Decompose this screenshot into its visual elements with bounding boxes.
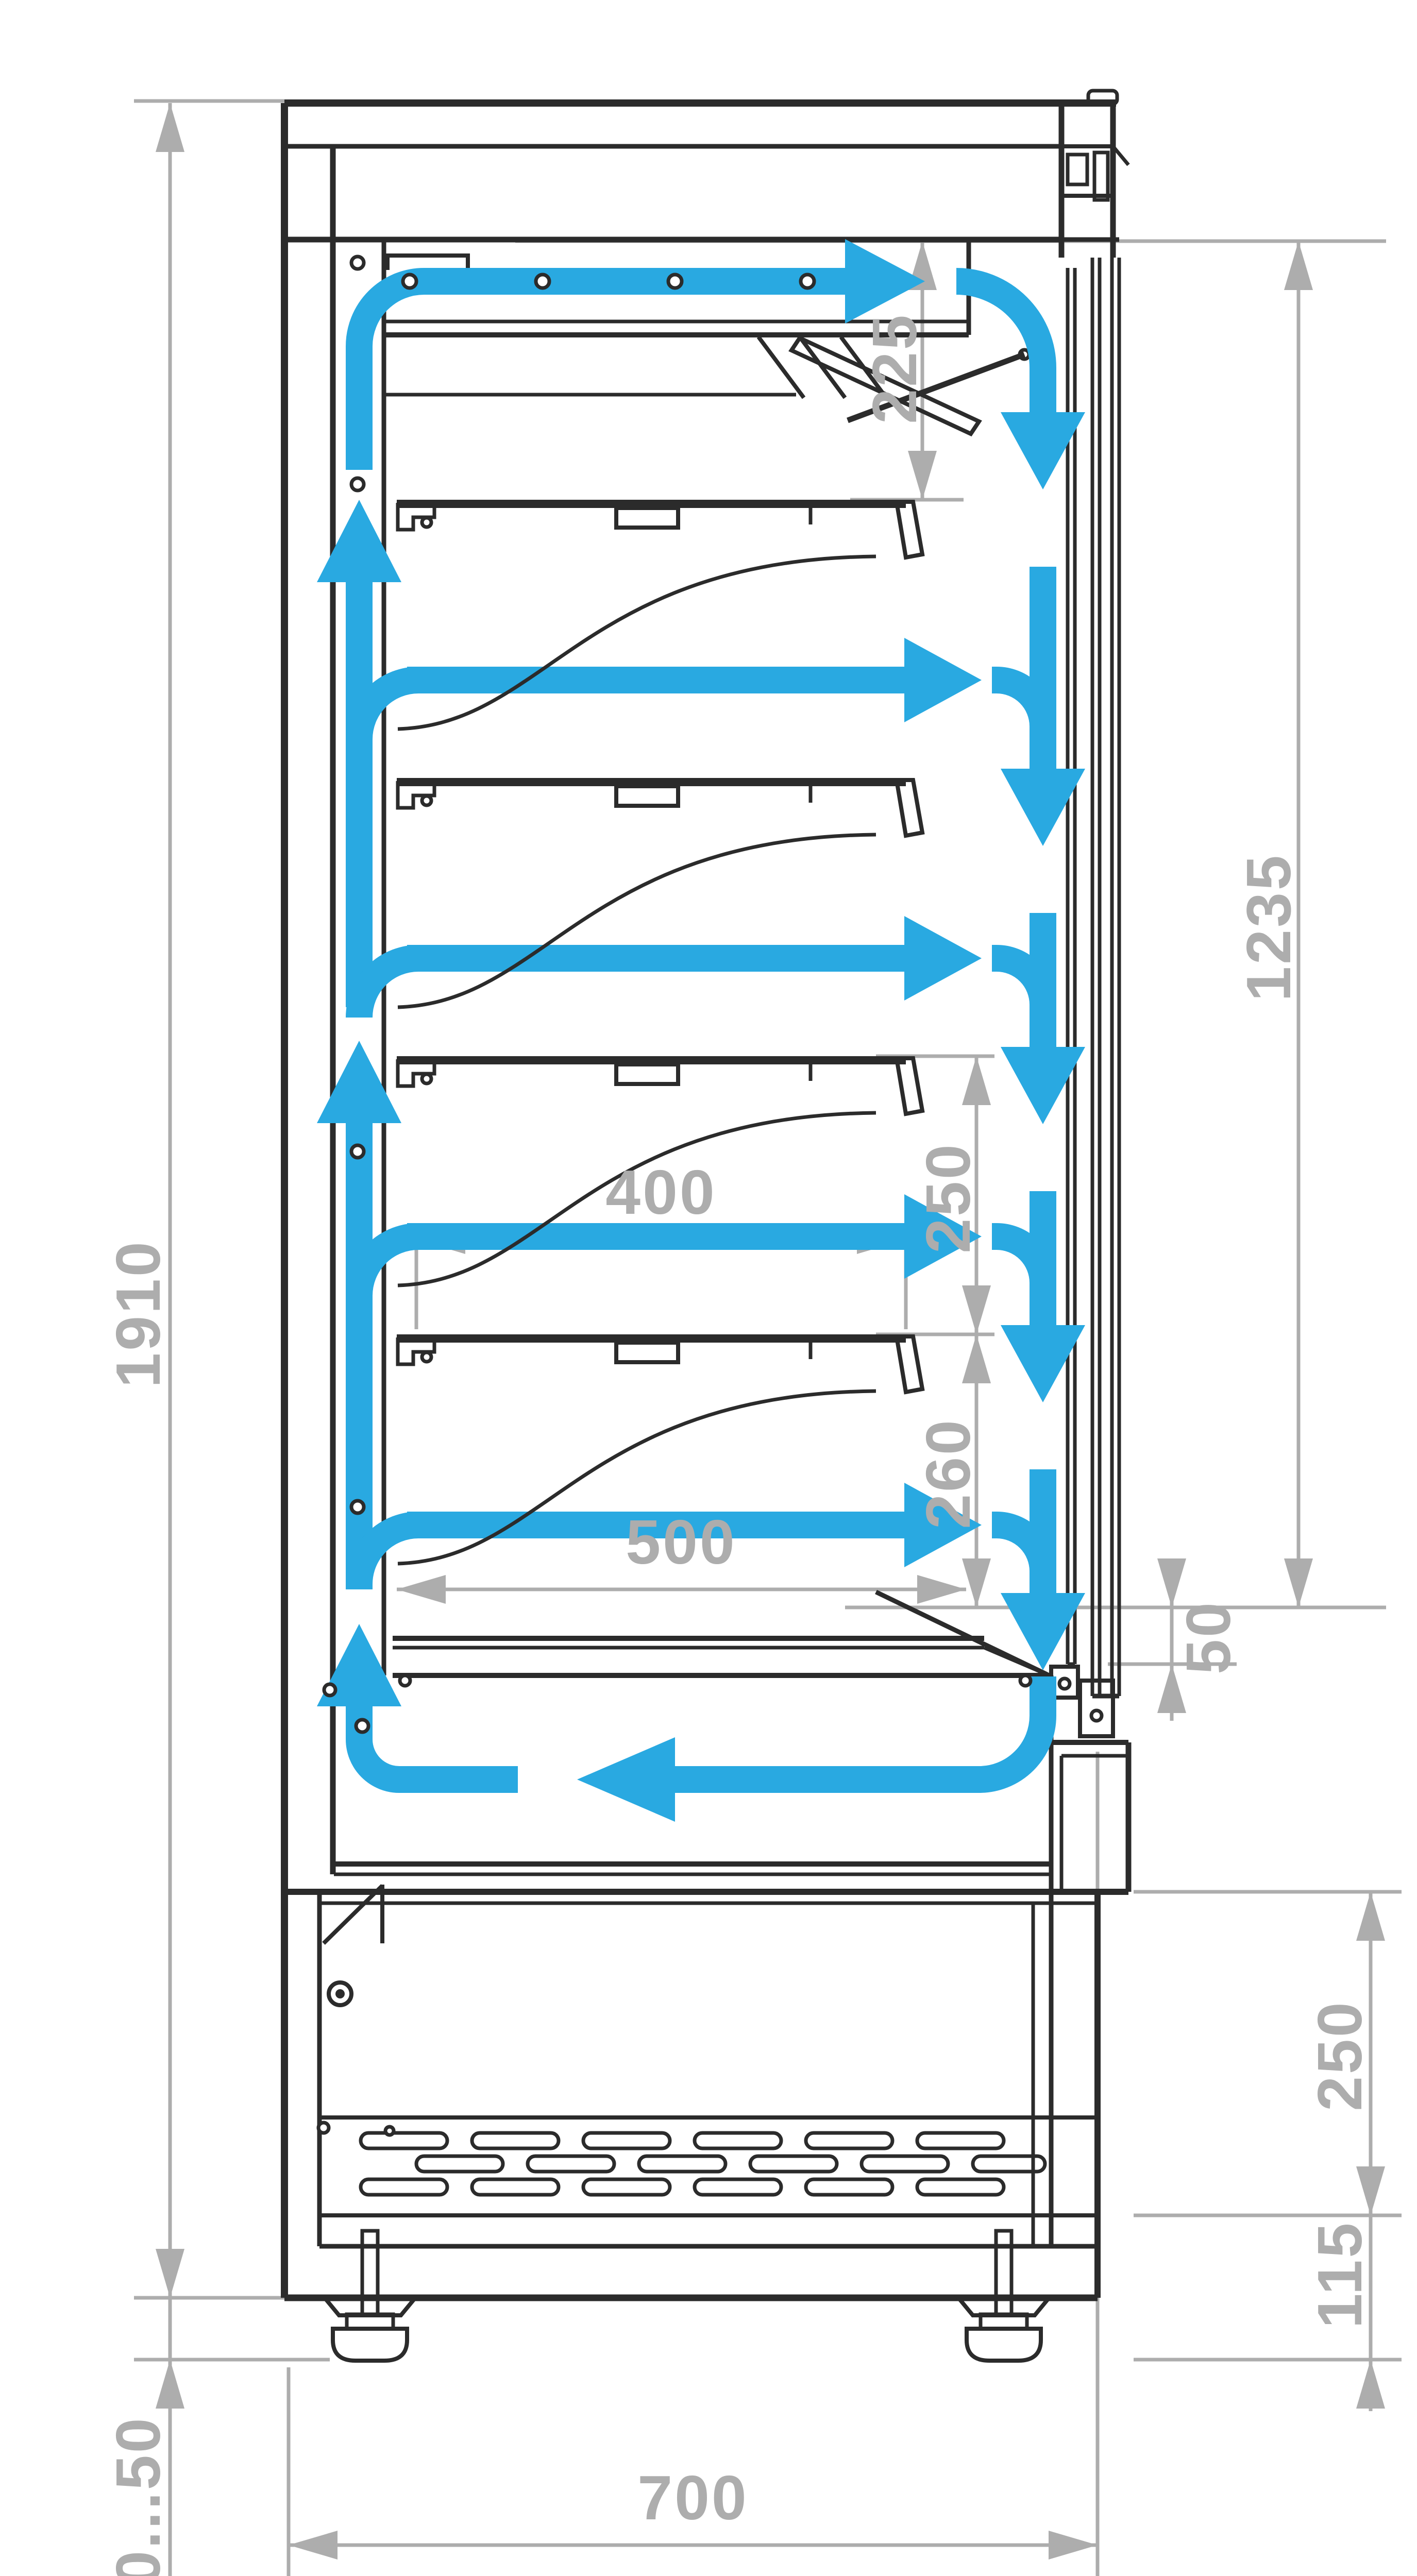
label-bottom-shelf-to-deck: 260 (913, 1418, 983, 1529)
arrow-left (397, 1575, 446, 1604)
machine-base (284, 1885, 1128, 2298)
rivet (1020, 1675, 1031, 1686)
shelf-4 (397, 1336, 922, 1392)
label-canopy-to-first-shelf: 225 (859, 313, 930, 424)
arrow-up (156, 103, 184, 152)
cable-shelf-1 (398, 556, 876, 729)
rivet (400, 1675, 410, 1686)
arrow-down (1157, 1558, 1186, 1607)
flow-arrowhead-right (845, 239, 925, 324)
flow-arrowhead-down (1001, 1325, 1085, 1402)
flow-junction-4 (992, 1525, 1043, 1593)
arrow-left (289, 2531, 338, 2560)
cable-shelf-2 (398, 835, 876, 1007)
label-air-outlet-gap: 50 (1173, 1600, 1243, 1674)
airflow-dimension-diagram: 1910 30...50 225 1235 250 260 50 250 115… (0, 0, 1417, 2576)
flow-arrowhead-right (904, 638, 982, 722)
arrow-up (962, 1334, 991, 1383)
shelf-tag (616, 508, 678, 528)
shelf-1 (397, 502, 922, 557)
label-foot-adjustment: 30...50 (103, 2416, 173, 2576)
duct-hole (403, 275, 416, 288)
label-grille-clearance: 115 (1305, 2221, 1375, 2329)
arrow-up (156, 2360, 184, 2409)
adjustable-foot-right (958, 2231, 1049, 2361)
flow-arrowhead-up (317, 1041, 401, 1123)
flow-arrowhead-left (577, 1737, 675, 1822)
label-shelf-spacing: 250 (913, 1142, 983, 1253)
rivet (385, 2127, 394, 2135)
rivet (351, 257, 364, 269)
label-overall-depth: 700 (637, 2463, 749, 2533)
shelf-tag (616, 786, 678, 806)
shelf-2 (397, 780, 922, 836)
label-deck-depth: 500 (626, 1507, 737, 1577)
arrow-down (962, 1285, 991, 1334)
flow-return-bend-up (359, 1706, 518, 1780)
price-rail (897, 1058, 922, 1114)
duct-hole (801, 275, 814, 288)
rivet (356, 1720, 368, 1732)
arrow-up (1356, 2360, 1385, 2409)
foot-bolt (362, 2231, 378, 2314)
dimension-labels: 1910 30...50 225 1235 250 260 50 250 115… (103, 313, 1375, 2576)
shelf-3 (397, 1058, 922, 1114)
lamp-bracket (387, 256, 468, 270)
glass-door (1068, 258, 1119, 1696)
flow-arrowhead-up (317, 500, 401, 582)
flow-junction-1 (992, 680, 1043, 769)
rivet (324, 1684, 335, 1696)
arrow-down (1284, 1558, 1313, 1607)
duct-hole (536, 275, 549, 288)
arrow-down (156, 2249, 184, 2298)
shelf-tag (616, 1064, 678, 1084)
price-rail (897, 1336, 922, 1392)
flow-arrowhead-down (1001, 412, 1085, 489)
arrow-right (1049, 2531, 1098, 2560)
adjustable-foot-left (325, 2231, 415, 2361)
arrow-up (962, 1056, 991, 1105)
price-rail (897, 502, 922, 557)
foot-pad (333, 2329, 407, 2361)
louver-slat (800, 337, 845, 398)
rivet (351, 478, 364, 490)
door-bottom-hinge (1051, 1667, 1128, 1892)
arrow-down (908, 451, 937, 500)
flow-return-duct (675, 1676, 1043, 1780)
arrow-up (1356, 1892, 1385, 1941)
foot-pad (967, 2329, 1041, 2361)
dimension-arrowheads (156, 103, 1385, 2560)
label-base-front-height: 250 (1305, 2000, 1375, 2111)
duct-hole (668, 275, 682, 288)
flow-back-duct-top-bend (359, 281, 845, 470)
rivet (351, 1501, 364, 1513)
arrow-down (1356, 2166, 1385, 2215)
flow-arrowhead-right (904, 916, 982, 1001)
arrow-down (962, 1558, 991, 1607)
flow-arrowhead-down (1001, 1047, 1085, 1124)
rivet (318, 2123, 329, 2133)
rivet (351, 1145, 364, 1158)
label-shelf-depth: 400 (605, 1157, 717, 1227)
price-rail (897, 780, 922, 836)
louver-slat (758, 337, 804, 398)
flow-arrowhead-down (1001, 769, 1085, 846)
ventilation-grille (361, 2133, 1045, 2195)
cabinet-cross-section-drawing: 1910 30...50 225 1235 250 260 50 250 115… (0, 0, 1417, 2576)
label-overall-height: 1910 (103, 1240, 173, 1387)
arrow-right (917, 1575, 966, 1604)
label-opening-height: 1235 (1234, 853, 1304, 1001)
foot-bolt (996, 2231, 1011, 2314)
flow-junction-3 (992, 1236, 1043, 1325)
arrow-up (1284, 241, 1313, 290)
shelf-tag (616, 1343, 678, 1362)
flow-junction-2 (992, 958, 1043, 1047)
canopy-hinge-block (1061, 91, 1128, 258)
